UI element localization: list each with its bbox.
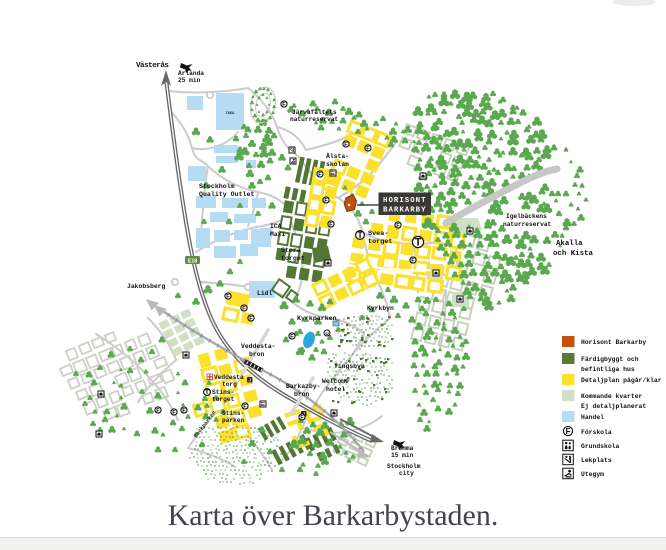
svg-text:torg: torg <box>222 381 237 388</box>
svg-text:E18: E18 <box>188 259 197 265</box>
svg-text:BARKARBY: BARKARBY <box>383 207 426 215</box>
svg-text:torget: torget <box>281 255 305 262</box>
svg-text:Akalla: Akalla <box>556 240 583 248</box>
svg-text:F: F <box>182 408 186 414</box>
svg-text:Ej detaljplanerat: Ej detaljplanerat <box>581 403 646 410</box>
svg-text:Stockholm: Stockholm <box>387 463 421 470</box>
svg-text:HORISONT: HORISONT <box>383 197 426 205</box>
svg-text:Kyrkparken: Kyrkparken <box>297 315 337 322</box>
svg-text:bron: bron <box>249 351 265 358</box>
svg-text:Igelbäckens: Igelbäckens <box>506 213 547 220</box>
svg-text:F: F <box>226 294 230 300</box>
svg-text:F: F <box>396 223 400 229</box>
svg-text:F: F <box>318 172 322 178</box>
svg-text:befintliga hus: befintliga hus <box>581 366 635 373</box>
svg-text:F: F <box>290 334 294 340</box>
svg-text:F: F <box>565 426 570 436</box>
svg-text:F: F <box>344 142 348 148</box>
svg-text:F: F <box>172 410 176 416</box>
svg-text:25 min: 25 min <box>178 77 201 84</box>
svg-text:T: T <box>357 230 363 240</box>
svg-text:F: F <box>411 258 415 264</box>
svg-text:F: F <box>324 198 328 204</box>
svg-text:och Kista: och Kista <box>553 250 593 258</box>
svg-text:Karta över Barkarbystaden.: Karta över Barkarbystaden. <box>168 499 499 532</box>
svg-text:Stins-: Stins- <box>222 410 244 417</box>
svg-text:Barkazby-: Barkazby- <box>286 383 321 390</box>
svg-text:Kommande kvarter: Kommande kvarter <box>581 393 643 400</box>
svg-text:F: F <box>282 102 286 108</box>
svg-text:Detaljplan pågår/klar: Detaljplan pågår/klar <box>581 377 662 384</box>
svg-text:parken: parken <box>222 417 245 424</box>
svg-text:Stins-: Stins- <box>212 389 234 396</box>
svg-text:F: F <box>366 146 370 152</box>
svg-text:torget: torget <box>368 238 392 246</box>
svg-text:Tingsbyn: Tingsbyn <box>334 363 365 370</box>
svg-text:torget: torget <box>212 396 235 403</box>
svg-text:Lekplats: Lekplats <box>581 457 612 464</box>
svg-text:skolan: skolan <box>326 161 349 168</box>
svg-text:Färdigbyggt och: Färdigbyggt och <box>581 356 639 363</box>
svg-text:Veddesta-: Veddesta- <box>241 343 276 350</box>
svg-text:hotel: hotel <box>326 386 345 393</box>
svg-text:ICA: ICA <box>270 223 282 230</box>
svg-text:F: F <box>243 404 247 410</box>
svg-text:Veddesta: Veddesta <box>214 374 244 381</box>
svg-text:Horisont Barkarby: Horisont Barkarby <box>581 339 646 346</box>
svg-text:Lidl: Lidl <box>257 290 273 297</box>
svg-text:Ålsta-: Ålsta- <box>326 152 349 160</box>
svg-text:Järvafältets: Järvafältets <box>292 109 337 116</box>
svg-text:IKEA: IKEA <box>226 112 235 116</box>
svg-text:T: T <box>415 237 422 249</box>
svg-text:F: F <box>329 222 333 228</box>
svg-text:Utegym: Utegym <box>581 471 604 478</box>
svg-text:Jakobsberg: Jakobsberg <box>127 283 166 290</box>
svg-text:Bromma: Bromma <box>391 445 414 452</box>
svg-text:Grundskola: Grundskola <box>581 443 620 450</box>
svg-text:naturreservat: naturreservat <box>503 221 552 228</box>
svg-text:Handel: Handel <box>581 414 604 421</box>
svg-text:F: F <box>242 306 246 312</box>
svg-text:Stora: Stora <box>281 247 301 254</box>
svg-text:15 min: 15 min <box>391 452 414 459</box>
svg-text:Arlanda: Arlanda <box>178 70 204 77</box>
svg-text:Stockholm: Stockholm <box>199 183 235 190</box>
svg-text:Förskola: Förskola <box>581 429 612 436</box>
svg-text:naturreservat: naturreservat <box>290 116 339 123</box>
svg-text:Welcome: Welcome <box>322 378 349 385</box>
svg-text:bron: bron <box>294 391 310 398</box>
svg-text:city: city <box>399 470 414 477</box>
svg-text:Kyrkbyn: Kyrkbyn <box>367 305 394 312</box>
svg-text:Quality Outlet: Quality Outlet <box>199 191 254 198</box>
svg-text:Västerås: Västerås <box>136 62 169 70</box>
svg-text:F: F <box>156 408 160 414</box>
svg-text:Svea-: Svea- <box>368 230 388 238</box>
svg-text:Maxi: Maxi <box>270 231 286 238</box>
svg-text:F: F <box>249 316 253 322</box>
svg-text:F: F <box>300 415 304 421</box>
